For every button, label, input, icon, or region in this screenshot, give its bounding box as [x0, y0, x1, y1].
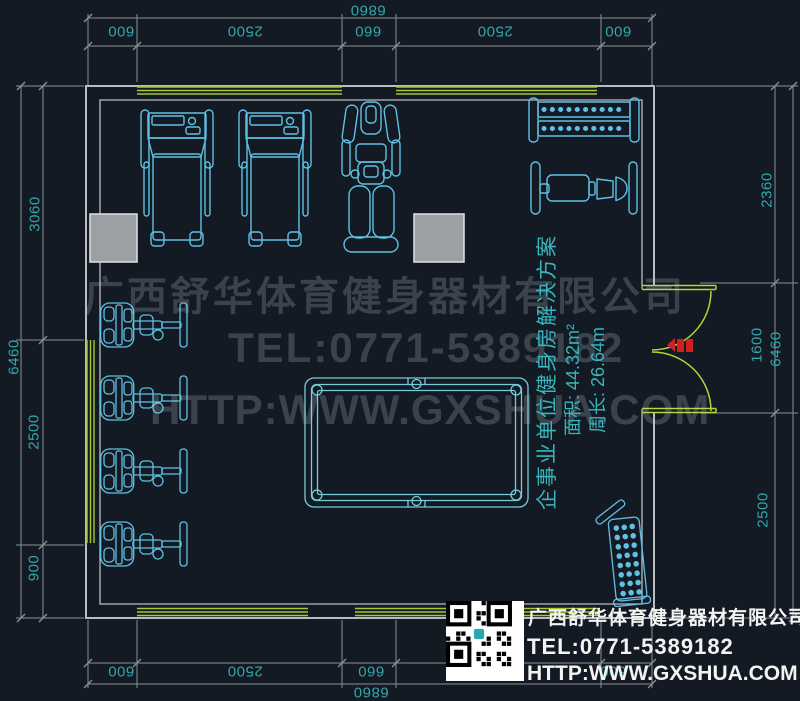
dim-bottom-seg-1: 2500 [227, 663, 262, 680]
dim-right-seg-1: 1600 [749, 327, 766, 362]
columns [90, 214, 464, 262]
dim-top-overall: 6860 [350, 2, 385, 19]
column-1 [90, 214, 137, 262]
strength-machine-3 [101, 449, 187, 493]
column-2 [414, 214, 464, 262]
strength-machine-4 [101, 522, 187, 566]
qr-code [446, 601, 524, 681]
plan-info-title: 企事业单位健身房解决方案 [535, 250, 561, 510]
dim-right-seg-2: 2500 [755, 492, 772, 527]
dim-left-seg-0: 3060 [27, 196, 44, 231]
dim-left-seg-1: 2500 [26, 414, 43, 449]
contact-url: HTTP:WWW.GXSHUA.COM [527, 662, 798, 686]
window-strips [87, 87, 600, 616]
exercise-bike [341, 102, 400, 252]
strength-machine-2 [101, 376, 187, 420]
contact-company: 广西舒华体育健身器材有限公司 [528, 603, 800, 630]
entrance-marker [667, 338, 693, 352]
dim-top-seg-4: 600 [605, 23, 632, 40]
dim-top-seg-3: 2500 [477, 23, 512, 40]
contact-tel: TEL:0771-5389182 [527, 634, 734, 660]
dim-right-seg-0: 2360 [759, 172, 776, 207]
strength-machine-1 [101, 303, 187, 347]
dim-bottom-seg-2: 660 [358, 663, 385, 680]
dim-top-seg-1: 2500 [227, 23, 262, 40]
treadmill-1 [141, 110, 213, 246]
dumbbell-rack [529, 98, 639, 142]
cad-floor-plan-canvas: 广西舒华体育健身器材有限公司 TEL:0771-5389182 HTTP:WWW… [0, 0, 800, 701]
qr-logo [474, 629, 484, 639]
plan-info-block: 企事业单位健身房解决方案 面积: 44.32m² 周长: 26.64m [535, 250, 611, 510]
dim-top-seg-0: 600 [108, 23, 135, 40]
dim-top-seg-2: 660 [355, 23, 382, 40]
pool-table [305, 378, 528, 507]
dim-left-seg-2: 900 [26, 555, 43, 582]
adjustable-bench [531, 162, 637, 214]
plan-info-area: 面积: 44.32m² [561, 250, 586, 510]
dim-left-overall: 6460 [6, 339, 23, 374]
treadmill-2 [239, 110, 311, 246]
plan-info-perimeter: 周长: 26.64m [586, 250, 611, 510]
dim-right-overall: 6460 [768, 331, 785, 366]
dim-bottom-overall: 6860 [353, 684, 388, 701]
dim-bottom-seg-0: 600 [108, 663, 135, 680]
entrance-arrow-icon [667, 338, 675, 352]
